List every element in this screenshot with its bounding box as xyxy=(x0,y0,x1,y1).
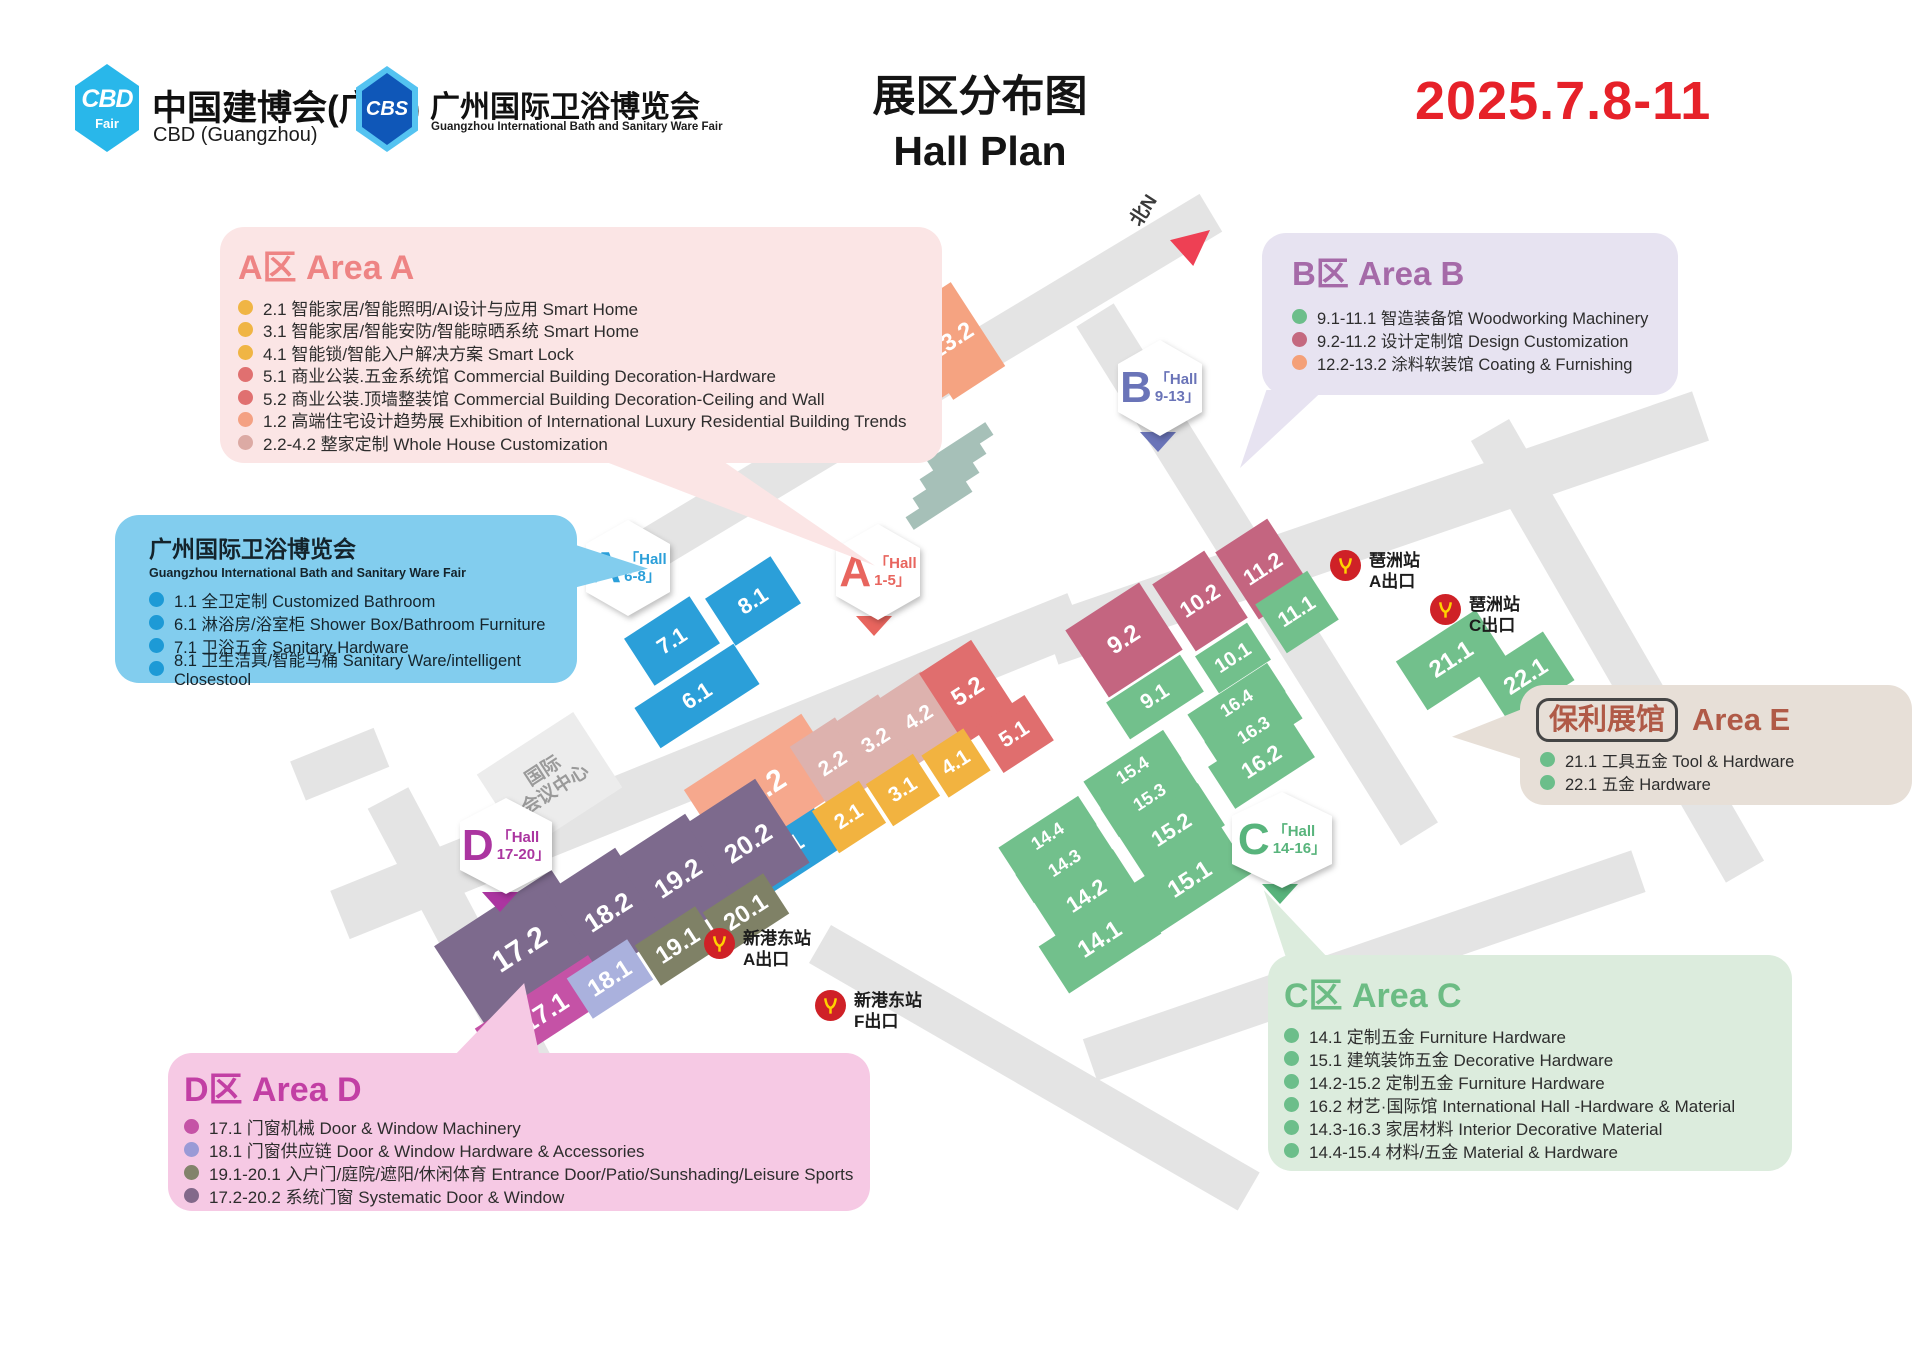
cbd-logo-text: CBD xyxy=(81,85,132,114)
bath-fair-subtitle: Guangzhou International Bath and Sanitar… xyxy=(115,564,577,588)
hex-letter: B xyxy=(1120,366,1152,410)
legend-item: 2.2-4.2 整家定制 Whole House Customization xyxy=(220,431,942,454)
hex-range: 「Hall17-20」 xyxy=(497,829,550,863)
legend-dot xyxy=(149,638,164,653)
legend-item: 5.1 商业公装.五金系统馆 Commercial Building Decor… xyxy=(220,364,942,387)
hex-letter: D xyxy=(462,824,494,868)
hall-label: 5.2 xyxy=(946,671,989,713)
hex-range: 「Hall14-16」 xyxy=(1273,823,1326,857)
legend-dot xyxy=(184,1142,199,1157)
hexagon-hall-9-13: B 「Hall9-13」 xyxy=(1118,340,1202,436)
hall-label: 11.2 xyxy=(1238,547,1287,591)
metro-icon xyxy=(704,928,735,959)
callout-tail-area-b xyxy=(1240,390,1328,468)
hexagon-hall-17-20: D 「Hall17-20」 xyxy=(460,798,552,894)
metro-icon xyxy=(1430,594,1461,625)
legend-dot xyxy=(1540,752,1555,767)
legend-item: 22.1 五金 Hardware xyxy=(1520,771,1912,794)
station-label: 琶洲站C出口 xyxy=(1469,594,1520,636)
legend-item: 6.1 淋浴房/浴室柜 Shower Box/Bathroom Furnitur… xyxy=(115,611,577,634)
metro-icon xyxy=(815,990,846,1021)
legend-dot xyxy=(1284,1143,1299,1158)
legend-dot xyxy=(149,592,164,607)
station-label: 新港东站A出口 xyxy=(743,928,811,970)
legend-dot xyxy=(238,412,253,427)
legend-item: 3.1 智能家居/智能安防/智能晾晒系统 Smart Home xyxy=(220,319,942,342)
hall-label: 2.2 xyxy=(814,746,852,782)
bath-fair-title: 广州国际卫浴博览会 xyxy=(115,515,577,564)
hex-range: 「Hall9-13」 xyxy=(1155,371,1200,405)
page-title: 展区分布图 Hall Plan xyxy=(800,62,1160,175)
hex-letter: C xyxy=(1238,818,1270,862)
legend-dot xyxy=(238,367,253,382)
hall-label: 15.1 xyxy=(1163,856,1217,905)
legend-dot xyxy=(238,390,253,405)
legend-dot xyxy=(238,322,253,337)
legend-dot xyxy=(238,345,253,360)
station-xingangdong-f: 新港东站F出口 xyxy=(815,990,922,1032)
station-pazhou-c: 琶洲站C出口 xyxy=(1430,594,1520,636)
legend-dot xyxy=(238,435,253,450)
station-pazhou-a: 琶洲站A出口 xyxy=(1330,550,1420,592)
hall-label: 21.1 xyxy=(1424,636,1478,685)
area-b-title: B区 Area B xyxy=(1262,233,1678,305)
hall-label: 17.2 xyxy=(486,920,553,980)
hall-label: 9.1 xyxy=(1136,679,1174,715)
legend-item: 5.2 商业公装.顶墙整装馆 Commercial Building Decor… xyxy=(220,386,942,409)
cbd-fair-logo: CBD Fair xyxy=(75,64,139,152)
area-a-title: A区 Area A xyxy=(220,227,942,296)
hall-label: 4.2 xyxy=(900,700,938,736)
hall-label: 10.1 xyxy=(1210,638,1255,678)
legend-area-a: A区 Area A 2.1 智能家居/智能照明/AI设计与应用 Smart Ho… xyxy=(220,227,942,463)
station-label: 琶洲站A出口 xyxy=(1369,550,1420,592)
legend-item: 17.2-20.2 系统门窗 Systematic Door & Window xyxy=(168,1184,870,1207)
hall-label: 3.2 xyxy=(857,723,895,759)
legend-dot xyxy=(1284,1028,1299,1043)
legend-item: 9.1-11.1 智造装备馆 Woodworking Machinery xyxy=(1262,305,1678,328)
hall-plan-poster: 国际 会议中心 北N 7.1 8.1 6.1 1.1 1.2 2.2 3.2 4… xyxy=(0,0,1920,1358)
legend-item: 14.2-15.2 定制五金 Furniture Hardware xyxy=(1268,1070,1792,1093)
station-label: 新港东站F出口 xyxy=(854,990,922,1032)
hall-label: 8.1 xyxy=(733,582,773,620)
callout-tail-area-c xyxy=(1258,890,1330,960)
area-d-title: D区 Area D xyxy=(168,1053,870,1115)
hall-label: 7.1 xyxy=(652,622,692,660)
legend-dot xyxy=(1292,309,1307,324)
cbs-fair-logo: CBS xyxy=(356,66,418,152)
legend-dot xyxy=(184,1188,199,1203)
page-title-cn: 展区分布图 xyxy=(800,62,1160,124)
legend-area-d: D区 Area D 17.1 门窗机械 Door & Window Machin… xyxy=(168,1053,870,1211)
legend-area-e: 保利展馆 Area E 21.1 工具五金 Tool & Hardware 22… xyxy=(1520,685,1912,805)
legend-item: 18.1 门窗供应链 Door & Window Hardware & Acce… xyxy=(168,1138,870,1161)
hall-label: 16.2 xyxy=(1236,739,1286,784)
legend-item: 14.4-15.4 材料/五金 Material & Hardware xyxy=(1268,1139,1792,1162)
legend-dot xyxy=(1284,1120,1299,1135)
legend-dot xyxy=(1540,775,1555,790)
hall-label: 11.1 xyxy=(1274,591,1320,633)
metro-icon xyxy=(1330,550,1361,581)
road-bottom-center xyxy=(809,925,1260,1211)
legend-item: 19.1-20.1 入户门/庭院/遮阳/休闲体育 Entrance Door/P… xyxy=(168,1161,870,1184)
station-xingangdong-a: 新港东站A出口 xyxy=(704,928,811,970)
legend-dot xyxy=(184,1119,199,1134)
legend-area-c: C区 Area C 14.1 定制五金 Furniture Hardware 1… xyxy=(1268,955,1792,1171)
hall-label: 19.1 xyxy=(651,922,705,971)
legend-dot xyxy=(1284,1051,1299,1066)
legend-item: 1.1 全卫定制 Customized Bathroom xyxy=(115,588,577,611)
fair-date: 2025.7.8-11 xyxy=(1415,70,1711,132)
hall-label: 6.1 xyxy=(677,677,717,715)
legend-dot xyxy=(149,615,164,630)
hall-8.1: 8.1 xyxy=(705,556,801,645)
road-west-stub xyxy=(290,728,389,801)
legend-dot xyxy=(238,300,253,315)
legend-dot xyxy=(1292,355,1307,370)
legend-item: 4.1 智能锁/智能入户解决方案 Smart Lock xyxy=(220,341,942,364)
hall-label: 2.1 xyxy=(830,799,868,835)
hex-range: 「Hall1-5」 xyxy=(874,555,917,589)
legend-item: 2.1 智能家居/智能照明/AI设计与应用 Smart Home xyxy=(220,296,942,319)
cbd-fair-subtitle: CBD (Guangzhou) xyxy=(153,124,318,147)
cbs-logo-text: CBS xyxy=(366,98,408,121)
legend-item: 12.2-13.2 涂料软装馆 Coating & Furnishing xyxy=(1262,351,1678,374)
legend-item: 1.2 高端住宅设计趋势展 Exhibition of Internationa… xyxy=(220,409,942,432)
area-c-title: C区 Area C xyxy=(1268,955,1792,1024)
area-e-pill: 保利展馆 xyxy=(1536,698,1678,742)
cbs-fair-subtitle: Guangzhou International Bath and Sanitar… xyxy=(431,121,723,133)
legend-area-b: B区 Area B 9.1-11.1 智造装备馆 Woodworking Mac… xyxy=(1262,233,1678,395)
legend-dot xyxy=(1284,1097,1299,1112)
hall-label: 4.1 xyxy=(937,745,975,781)
hall-label: 9.2 xyxy=(1102,619,1145,661)
cbd-logo-fair: Fair xyxy=(95,116,119,131)
legend-item: 14.3-16.3 家居材料 Interior Decorative Mater… xyxy=(1268,1116,1792,1139)
area-e-title: Area E xyxy=(1692,702,1790,738)
legend-dot xyxy=(1284,1074,1299,1089)
legend-item: 17.1 门窗机械 Door & Window Machinery xyxy=(168,1115,870,1138)
hall-label: 14.1 xyxy=(1073,916,1127,965)
cbs-fair-title: 广州国际卫浴博览会 xyxy=(430,82,700,126)
legend-dot xyxy=(1292,332,1307,347)
hall-label: 18.2 xyxy=(578,885,637,939)
hexagon-hall-1-5: A 「Hall1-5」 xyxy=(836,524,920,620)
hall-label: 18.1 xyxy=(583,955,637,1004)
hall-label: 5.1 xyxy=(994,715,1034,753)
page-title-en: Hall Plan xyxy=(800,128,1160,175)
hall-label: 20.2 xyxy=(718,816,777,870)
legend-item: 14.1 定制五金 Furniture Hardware xyxy=(1268,1024,1792,1047)
hall-label: 10.2 xyxy=(1175,578,1225,623)
legend-dot xyxy=(184,1165,199,1180)
legend-dot xyxy=(149,661,164,676)
legend-item: 15.1 建筑装饰五金 Decorative Hardware xyxy=(1268,1047,1792,1070)
legend-item: 8.1 卫生洁具/智能马桶 Sanitary Ware/intelligent … xyxy=(115,657,577,680)
callout-tail-area-e xyxy=(1452,706,1524,762)
legend-item: 9.2-11.2 设计定制馆 Design Customization xyxy=(1262,328,1678,351)
hexagon-hall-14-16: C 「Hall14-16」 xyxy=(1232,792,1332,888)
hall-label: 19.2 xyxy=(648,851,707,905)
legend-bath-fair: 广州国际卫浴博览会 Guangzhou International Bath a… xyxy=(115,515,577,683)
hall-label: 3.1 xyxy=(884,772,922,808)
legend-item: 16.2 材艺·国际馆 International Hall -Hardware… xyxy=(1268,1093,1792,1116)
legend-item: 21.1 工具五金 Tool & Hardware xyxy=(1520,748,1912,771)
